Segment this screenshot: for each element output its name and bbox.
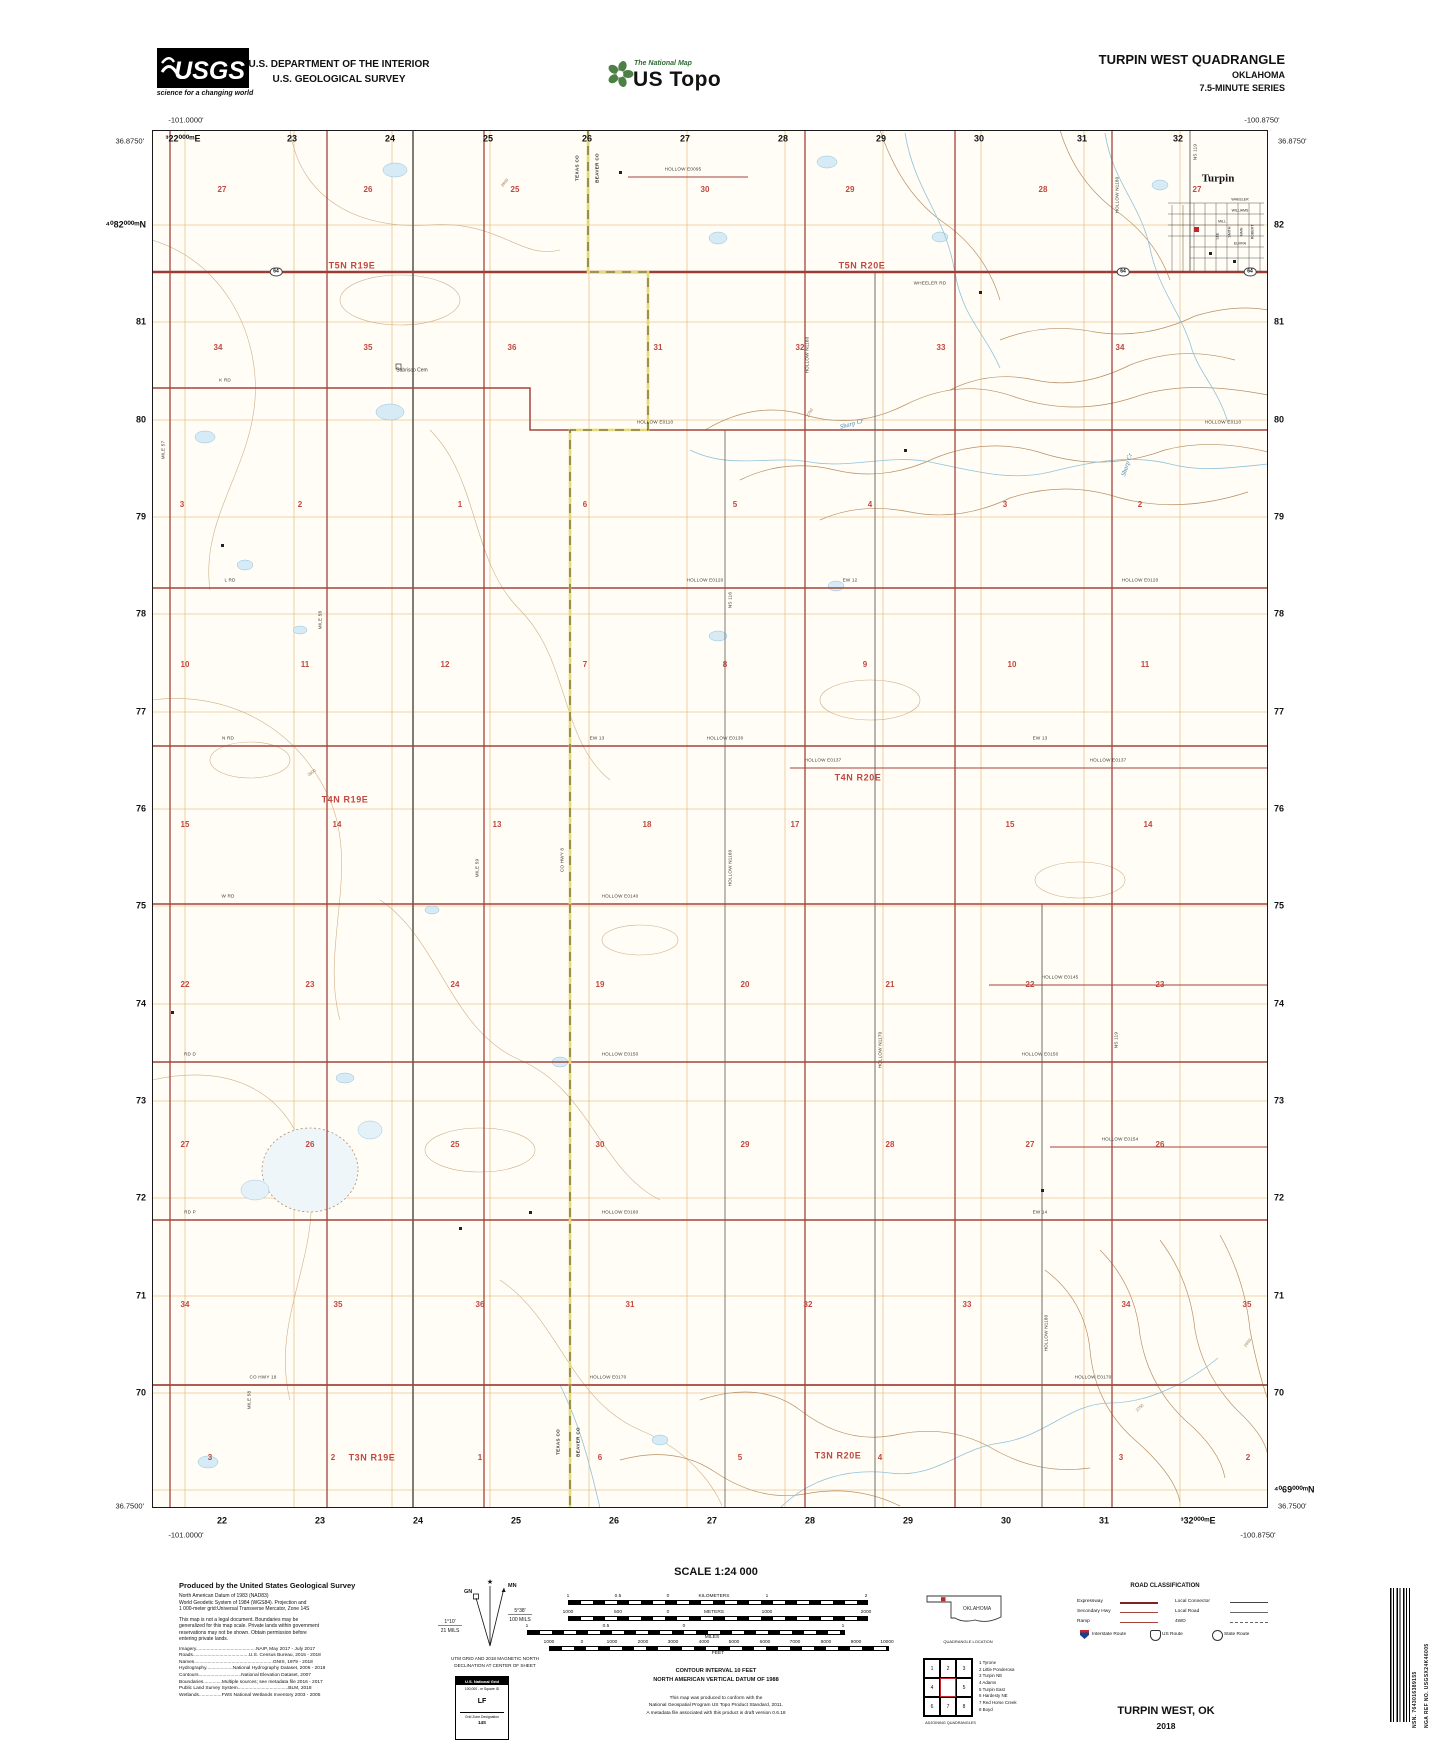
conformance-line: This map was produced to conform with th… xyxy=(546,1695,886,1702)
usng-zone: 14S xyxy=(456,1720,508,1725)
quad-state: OKLAHOMA xyxy=(1099,70,1285,80)
road-class-sample-lr xyxy=(1230,1612,1268,1613)
grid-label-left: 81 xyxy=(136,318,146,327)
route-shield-label: Interstate Route xyxy=(1092,1632,1126,1637)
usng-divider xyxy=(460,1712,504,1713)
produced-by-block: Produced by the United States Geological… xyxy=(179,1581,449,1699)
grid-label-left: ⁴⁰82⁰⁰⁰ᵐN xyxy=(106,221,146,230)
scale-bar-label: 2000 xyxy=(861,1610,872,1615)
scale-bar-label: 0 xyxy=(683,1624,686,1629)
adjoining-quad-name: 4 Adams xyxy=(979,1680,1017,1687)
scale-bar xyxy=(568,1600,868,1605)
grid-label-left: 76 xyxy=(136,805,146,814)
scale-bar-unit: FEET xyxy=(712,1651,724,1656)
scale-bar xyxy=(568,1616,868,1621)
scale-bar-label: KILOMETERS xyxy=(699,1594,730,1599)
barcode xyxy=(1390,1588,1410,1722)
road-class-label: Secondary Hwy xyxy=(1077,1609,1111,1614)
declination-caption-line1: UTM GRID AND 2018 MAGNETIC NORTH xyxy=(410,1656,580,1663)
scale-bar-label: 1000 xyxy=(762,1610,773,1615)
corner-coord-bl-lat: 36.7500' xyxy=(115,1502,144,1510)
department-heading: U.S. DEPARTMENT OF THE INTERIOR U.S. GEO… xyxy=(224,58,454,87)
road-class-sample-lc xyxy=(1230,1602,1268,1603)
ustopo-flower-icon xyxy=(606,60,634,88)
barcode-nga: NGA REF NO. USGSX24K46005 xyxy=(1424,1588,1430,1728)
scale-bar-label: 0.5 xyxy=(603,1624,610,1629)
grid-label-right: 79 xyxy=(1274,513,1284,522)
scale-bar xyxy=(527,1630,845,1635)
scale-title: SCALE 1:24 000 xyxy=(566,1566,866,1578)
road-class-sample-sec xyxy=(1120,1612,1158,1613)
road-class-sample-exp xyxy=(1120,1602,1158,1604)
grid-label-bottom: 23 xyxy=(315,1517,325,1526)
adjoining-quad-name: 1 Tyrone xyxy=(979,1660,1017,1667)
corner-coord-br-lon: -100.8750' xyxy=(1240,1531,1275,1539)
scale-bar-label: 0 xyxy=(667,1610,670,1615)
conformance-line: National Geospatial Program US Topo Prod… xyxy=(546,1702,886,1709)
adjoining-cell: 7 xyxy=(940,1697,956,1716)
adjoining-caption: ADJOINING QUADRANGLES xyxy=(903,1721,998,1725)
scale-bar-label: 5000 xyxy=(729,1640,740,1645)
scale-bar-label: 6000 xyxy=(760,1640,771,1645)
grid-label-right: 77 xyxy=(1274,708,1284,717)
usgs-tagline: science for a changing world xyxy=(140,90,270,97)
data-credit-line: Roads...................................… xyxy=(179,1653,449,1660)
grid-label-bottom: ³32⁰⁰⁰ᵐE xyxy=(1181,1517,1216,1526)
adjoining-cell: 8 xyxy=(956,1697,972,1716)
grid-label-left: 70 xyxy=(136,1389,146,1398)
grid-label-bottom: 30 xyxy=(1001,1517,1011,1526)
route-shield-label: US Route xyxy=(1162,1632,1183,1637)
route-shield-label: State Route xyxy=(1224,1632,1249,1637)
quad-title: TURPIN WEST QUADRANGLE xyxy=(1099,52,1285,67)
svg-text:5°38': 5°38' xyxy=(514,1608,525,1614)
conformance-note: This map was produced to conform with th… xyxy=(546,1695,886,1717)
grid-label-right: 72 xyxy=(1274,1194,1284,1203)
grid-label-right: 70 xyxy=(1274,1389,1284,1398)
grid-label-left: 71 xyxy=(136,1292,146,1301)
scale-bar-label: 1000 xyxy=(563,1610,574,1615)
grid-label-bottom: 22 xyxy=(217,1517,227,1526)
usng-title: U.S. National Grid xyxy=(456,1677,508,1685)
scale-bar-label: 10000 xyxy=(880,1640,893,1645)
us-route-shield-icon xyxy=(1150,1630,1161,1641)
produced-title: Produced by the United States Geological… xyxy=(179,1581,449,1590)
grid-label-left: 72 xyxy=(136,1194,146,1203)
data-credit-line: Contours................................… xyxy=(179,1673,449,1680)
svg-text:100 MILS: 100 MILS xyxy=(509,1617,531,1623)
scale-bar-label: 0 xyxy=(581,1640,584,1645)
data-credit-line: Public Land Survey System...............… xyxy=(179,1686,449,1693)
grid-label-left: 79 xyxy=(136,513,146,522)
svg-text:1°10': 1°10' xyxy=(444,1619,455,1625)
road-class-sample-ramp xyxy=(1120,1622,1158,1623)
scale-bar-label: 2 xyxy=(865,1594,868,1599)
road-class-label: Local Connector xyxy=(1175,1599,1210,1604)
oklahoma-label: OKLAHOMA xyxy=(963,1606,992,1612)
svg-text:★: ★ xyxy=(487,1578,493,1586)
scale-bar-label: 500 xyxy=(614,1610,622,1615)
grid-label-bottom: 29 xyxy=(903,1517,913,1526)
corner-coord-tr-lon: -100.8750' xyxy=(1244,116,1279,124)
adjoining-cell-current xyxy=(940,1678,956,1697)
declination-caption-line2: DECLINATION AT CENTER OF SHEET xyxy=(410,1663,580,1670)
quad-series: 7.5-MINUTE SERIES xyxy=(1099,83,1285,93)
usng-box: U.S. National Grid 100,000 - m Square ID… xyxy=(455,1676,509,1740)
grid-label-right: ⁴⁰69⁰⁰⁰ᵐN xyxy=(1274,1486,1314,1495)
usng-square-label: 100,000 - m Square ID xyxy=(456,1687,508,1691)
adjoining-quad-name: 8 Boyd xyxy=(979,1707,1017,1714)
svg-text:MN: MN xyxy=(508,1583,517,1589)
grid-label-left: 75 xyxy=(136,902,146,911)
adjoining-quad-name: 2 Little Ponderosa xyxy=(979,1667,1017,1674)
grid-label-bottom: 26 xyxy=(609,1517,619,1526)
adjoining-cell: 5 xyxy=(956,1678,972,1697)
contour-interval-note: CONTOUR INTERVAL 10 FEET xyxy=(566,1668,866,1674)
scale-bar-label: 1 xyxy=(567,1594,570,1599)
grid-label-bottom: 28 xyxy=(805,1517,815,1526)
grid-label-right: 78 xyxy=(1274,610,1284,619)
grid-label-left: 73 xyxy=(136,1097,146,1106)
scale-bar-label: 1000 xyxy=(607,1640,618,1645)
grid-label-right: 81 xyxy=(1274,318,1284,327)
grid-label-right: 74 xyxy=(1274,1000,1284,1009)
adjoining-cell: 4 xyxy=(924,1678,940,1697)
grid-label-left: 80 xyxy=(136,416,146,425)
data-credit-line: Wetlands.................FWS National We… xyxy=(179,1693,449,1700)
grid-label-bottom: 24 xyxy=(413,1517,423,1526)
adjoining-cell: 2 xyxy=(940,1659,956,1678)
adjoining-quad-name: 3 Turpin NE xyxy=(979,1673,1017,1680)
corner-coord-br-lat: 36.7500' xyxy=(1278,1502,1307,1510)
corner-coord-tl-lat: 36.8750' xyxy=(115,137,144,145)
declination-diagram: ★ MN GN 5°38' 100 MILS 1°10' 21 MILS xyxy=(430,1576,560,1652)
corner-coord-bl-lon: -101.0000' xyxy=(168,1531,203,1539)
usng-zone-label: Grid Zone Designation xyxy=(456,1715,508,1719)
adjoining-cell: 1 xyxy=(924,1659,940,1678)
adjoining-cell: 6 xyxy=(924,1697,940,1716)
adjoining-quad-name: 6 Hardesty NE xyxy=(979,1693,1017,1700)
road-class-label: Local Road xyxy=(1175,1609,1199,1614)
sheet-name: TURPIN WEST, OK xyxy=(1076,1705,1256,1717)
adjoining-cell: 3 xyxy=(956,1659,972,1678)
corner-coord-tl-lon: -101.0000' xyxy=(168,116,203,124)
road-class-label: 4WD xyxy=(1175,1619,1186,1624)
ustopo-logo: The National Map US Topo xyxy=(598,52,758,100)
grid-label-bottom: 31 xyxy=(1099,1517,1109,1526)
scale-bar-label: 4000 xyxy=(699,1640,710,1645)
map-canvas xyxy=(152,130,1268,1508)
scale-bar-label: 1000 xyxy=(544,1640,555,1645)
grid-label-bottom: 27 xyxy=(707,1517,717,1526)
road-class-label: Ramp xyxy=(1077,1619,1090,1624)
dept-line1: U.S. DEPARTMENT OF THE INTERIOR xyxy=(224,58,454,73)
quad-location-caption: QUADRANGLE LOCATION xyxy=(908,1639,1028,1644)
town-building-red xyxy=(1194,227,1199,232)
conformance-line: A metadata file associated with this pro… xyxy=(546,1710,886,1717)
grid-label-right: 73 xyxy=(1274,1097,1284,1106)
scale-bar-label: 1 xyxy=(842,1624,845,1629)
scale-bar-label: METERS xyxy=(704,1610,724,1615)
svg-text:GN: GN xyxy=(464,1589,472,1595)
scale-bar-label: 2000 xyxy=(638,1640,649,1645)
grid-label-right: 75 xyxy=(1274,902,1284,911)
barcode-nsn: NSN. 7643016389155 xyxy=(1412,1588,1418,1728)
grid-label-right: 80 xyxy=(1274,416,1284,425)
usng-square-id: LF xyxy=(456,1698,508,1705)
grid-label-left: 78 xyxy=(136,610,146,619)
grid-label-right: 82 xyxy=(1274,221,1284,230)
vertical-datum-note: NORTH AMERICAN VERTICAL DATUM OF 1988 xyxy=(566,1677,866,1683)
sheet-year: 2018 xyxy=(1076,1721,1256,1731)
grid-label-right: 76 xyxy=(1274,805,1284,814)
data-credit-line: Hydrography....................National … xyxy=(179,1666,449,1673)
scale-bar-label: 1 xyxy=(766,1594,769,1599)
quad-location-marker xyxy=(941,1597,946,1601)
scale-bar-label: 1 xyxy=(526,1624,529,1629)
state-route-shield-icon xyxy=(1212,1630,1223,1641)
interstate-route-shield-icon xyxy=(1080,1630,1089,1639)
grid-label-left: 74 xyxy=(136,1000,146,1009)
road-classification-title: ROAD CLASSIFICATION xyxy=(1085,1583,1245,1589)
declination-art: ★ MN GN 5°38' 100 MILS 1°10' 21 MILS xyxy=(430,1576,560,1652)
quadrangle-heading: TURPIN WEST QUADRANGLE OKLAHOMA 7.5-MINU… xyxy=(1099,52,1285,93)
adjoining-quadrangles-list: 1 Tyrone2 Little Ponderosa3 Turpin NE4 A… xyxy=(979,1660,1017,1714)
national-map-brand: The National Map xyxy=(634,60,692,67)
oklahoma-outline: OKLAHOMA xyxy=(925,1590,1010,1634)
grid-label-left: 77 xyxy=(136,708,146,717)
ustopo-name: US Topo xyxy=(633,68,721,92)
adjoining-quadrangles-grid: 12345678 xyxy=(923,1658,973,1717)
scale-bar-label: 7000 xyxy=(790,1640,801,1645)
scale-bar-label: 9000 xyxy=(851,1640,862,1645)
grid-label-right: 71 xyxy=(1274,1292,1284,1301)
declination-caption: UTM GRID AND 2018 MAGNETIC NORTH DECLINA… xyxy=(410,1656,580,1670)
scale-bar-label: 3000 xyxy=(668,1640,679,1645)
scale-bar-label: 0 xyxy=(667,1594,670,1599)
road-class-label: Expressway xyxy=(1077,1599,1103,1604)
grid-label-bottom: 25 xyxy=(511,1517,521,1526)
dept-line2: U.S. GEOLOGICAL SURVEY xyxy=(224,73,454,88)
corner-coord-tr-lat: 36.8750' xyxy=(1278,137,1307,145)
adjoining-quad-name: 5 Turpin East xyxy=(979,1687,1017,1694)
scale-bar-label: 0.5 xyxy=(615,1594,622,1599)
topo-map-sheet: USGS science for a changing world U.S. D… xyxy=(0,0,1445,1746)
svg-text:21 MILS: 21 MILS xyxy=(441,1628,460,1634)
adjoining-quad-name: 7 Red Horse Creek xyxy=(979,1700,1017,1707)
road-class-sample-fwd xyxy=(1230,1622,1268,1623)
scale-bar-label: 8000 xyxy=(821,1640,832,1645)
